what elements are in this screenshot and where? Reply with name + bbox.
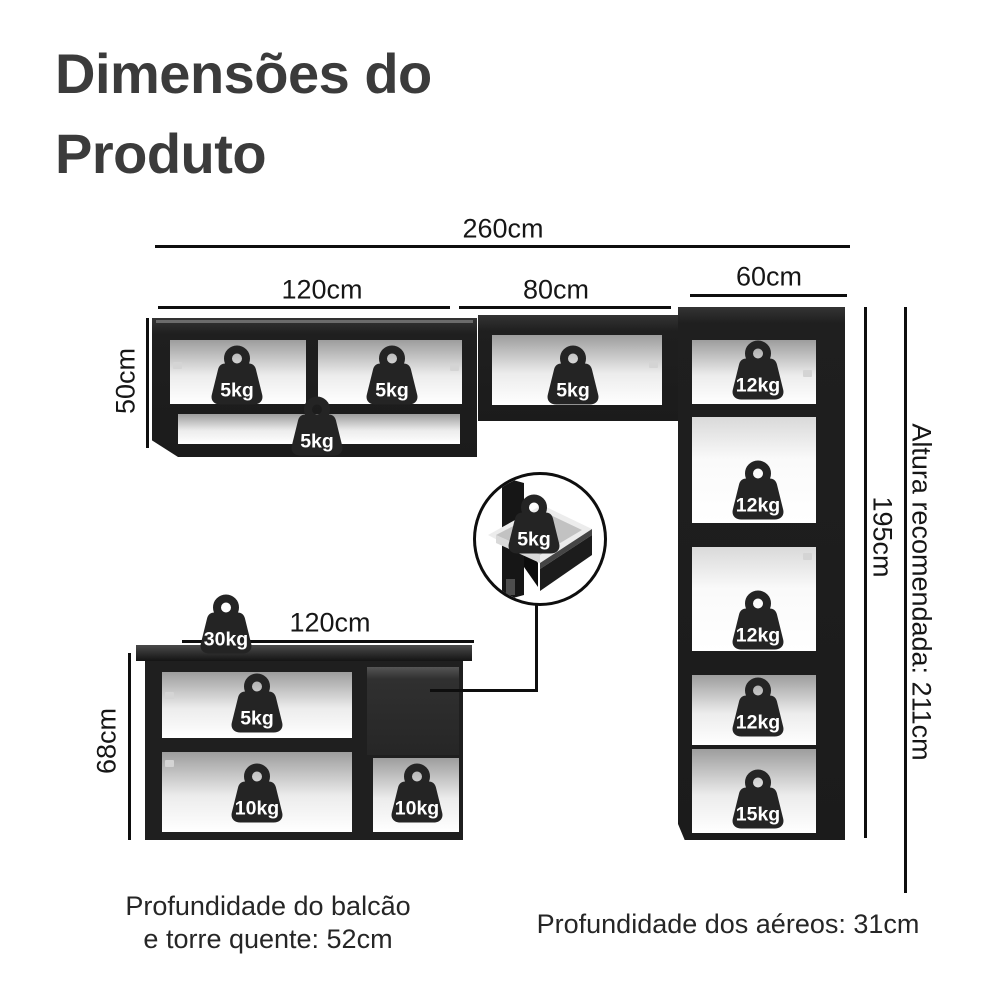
weight-icon-drawer-inset: 5kg: [506, 495, 562, 562]
svg-text:12kg: 12kg: [736, 375, 780, 397]
load-capacity-icons: 5kg5kg5kg5kg12kg12kg12kg12kg15kg30kg5kg1…: [0, 0, 1000, 1000]
weight-icon-aereo-120-right: 5kg: [364, 346, 420, 413]
product-dimensions-diagram: Dimensões do Produto 260cm120cm80cm60cm5…: [0, 0, 1000, 1000]
weight-icon-balcao-right: 10kg: [389, 764, 445, 831]
weight-icon-tower-top: 12kg: [730, 341, 786, 408]
svg-text:5kg: 5kg: [240, 708, 274, 730]
svg-text:10kg: 10kg: [235, 798, 279, 820]
weight-icon-balcao-lower: 10kg: [229, 764, 285, 831]
weight-icon-aereo-120-left: 5kg: [209, 346, 265, 413]
svg-text:5kg: 5kg: [300, 431, 334, 453]
svg-text:12kg: 12kg: [736, 495, 780, 517]
weight-icon-tower-bottom: 15kg: [730, 770, 786, 837]
svg-text:15kg: 15kg: [736, 804, 780, 826]
svg-text:12kg: 12kg: [736, 625, 780, 647]
svg-text:5kg: 5kg: [556, 380, 590, 402]
weight-icon-tower-shelf-41: 12kg: [730, 591, 786, 658]
svg-text:12kg: 12kg: [736, 712, 780, 734]
weight-icon-balcao-upper: 5kg: [229, 674, 285, 741]
weight-icon-countertop: 30kg: [198, 595, 254, 662]
svg-text:30kg: 30kg: [204, 629, 248, 651]
svg-text:5kg: 5kg: [375, 380, 409, 402]
svg-text:10kg: 10kg: [395, 798, 439, 820]
svg-text:5kg: 5kg: [220, 380, 254, 402]
weight-icon-aereo-80: 5kg: [545, 346, 601, 413]
svg-text:5kg: 5kg: [517, 529, 551, 551]
weight-icon-aereo-120-shelf: 5kg: [289, 397, 345, 464]
weight-icon-tower-oven: 12kg: [730, 461, 786, 528]
weight-icon-tower-lower: 12kg: [730, 678, 786, 745]
